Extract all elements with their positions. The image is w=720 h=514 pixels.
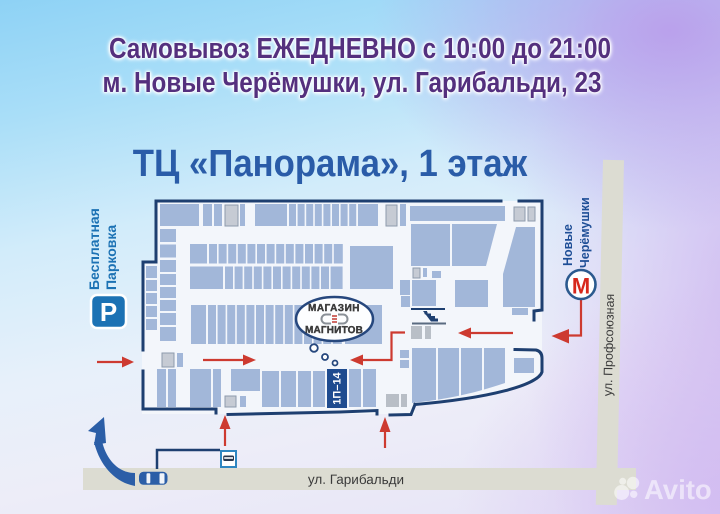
svg-text:МАГАЗИН: МАГАЗИН — [308, 303, 360, 314]
svg-text:Черёмушки: Черёмушки — [578, 197, 592, 268]
svg-text:P: P — [100, 297, 117, 327]
svg-text:1П–14: 1П–14 — [332, 371, 344, 404]
svg-text:Avito: Avito — [644, 474, 712, 505]
svg-text:ул. Профсоюзная: ул. Профсоюзная — [601, 294, 617, 397]
svg-text:Новые: Новые — [561, 224, 575, 266]
svg-text:Парковка: Парковка — [103, 225, 119, 290]
svg-text:Бесплатная: Бесплатная — [86, 208, 102, 290]
svg-text:ул. Гарибальди: ул. Гарибальди — [308, 472, 404, 487]
svg-text:М: М — [572, 274, 590, 299]
svg-text:МАГНИТОВ: МАГНИТОВ — [305, 325, 363, 336]
